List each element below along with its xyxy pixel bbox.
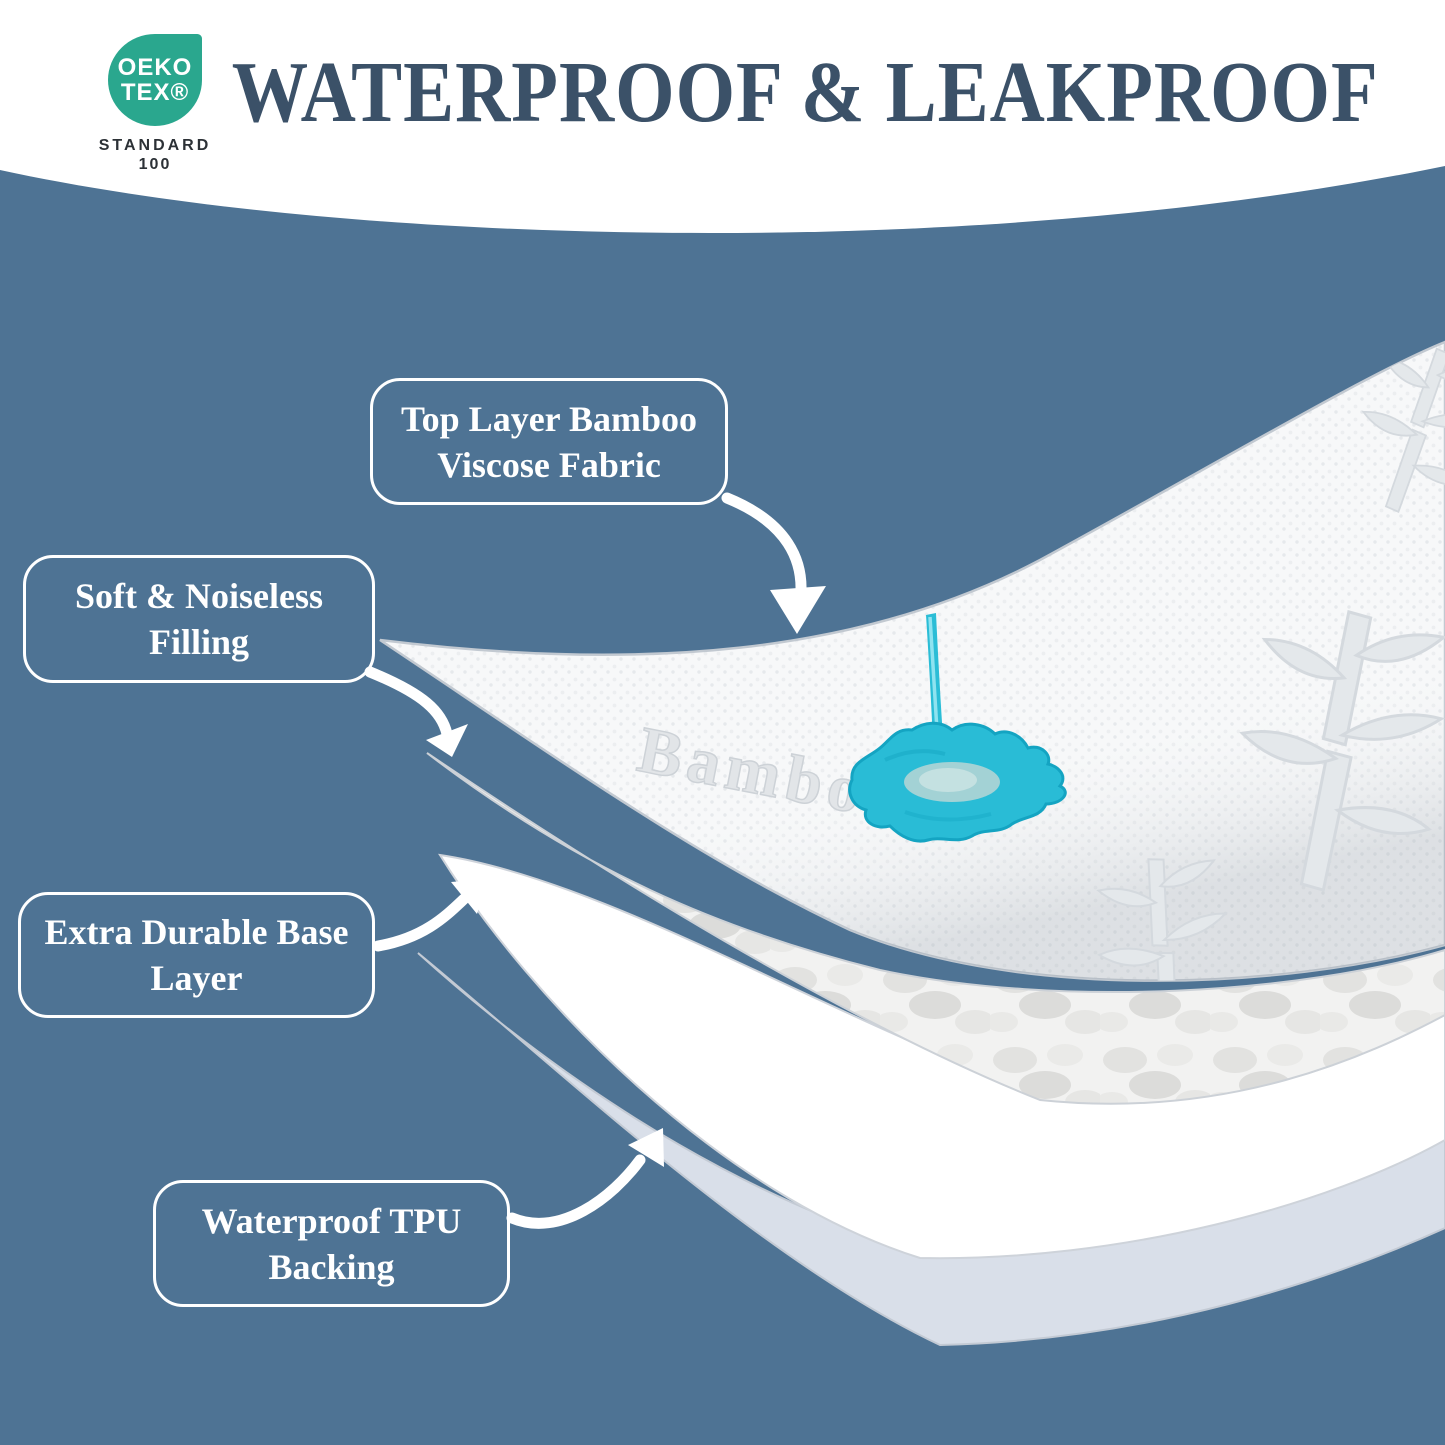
callout-top-layer: Top Layer Bamboo Viscose Fabric: [370, 378, 728, 505]
splash-pool-highlight: [919, 768, 977, 792]
infographic-canvas: Bamboo: [0, 0, 1445, 1445]
page-title: WATERPROOF & LEAKPROOF: [195, 46, 1415, 138]
callout-filling-line2: Filling: [149, 619, 249, 665]
callout-filling-line1: Soft & Noiseless: [75, 573, 323, 619]
callout-tpu-backing: Waterproof TPU Backing: [153, 1180, 510, 1307]
badge-brand-top: OEKO: [118, 55, 193, 80]
badge-standard: STANDARD 100: [60, 137, 250, 174]
badge-standard-number: 100: [60, 155, 250, 174]
badge-standard-label: STANDARD: [60, 137, 250, 155]
callout-base-layer: Extra Durable Base Layer: [18, 892, 375, 1018]
page-title-text: WATERPROOF & LEAKPROOF: [232, 40, 1379, 143]
callout-base-layer-line2: Layer: [151, 955, 243, 1001]
callout-filling: Soft & Noiseless Filling: [23, 555, 375, 683]
callout-base-layer-line1: Extra Durable Base: [45, 909, 349, 955]
badge-brand-bottom: TEX®: [121, 80, 189, 105]
callout-top-layer-line2: Viscose Fabric: [437, 442, 661, 488]
callout-tpu-backing-line2: Backing: [268, 1244, 394, 1290]
callout-tpu-backing-line1: Waterproof TPU: [202, 1198, 462, 1244]
callout-top-layer-line1: Top Layer Bamboo: [401, 396, 697, 442]
oeko-tex-drop-logo: OEKO TEX®: [108, 34, 202, 126]
